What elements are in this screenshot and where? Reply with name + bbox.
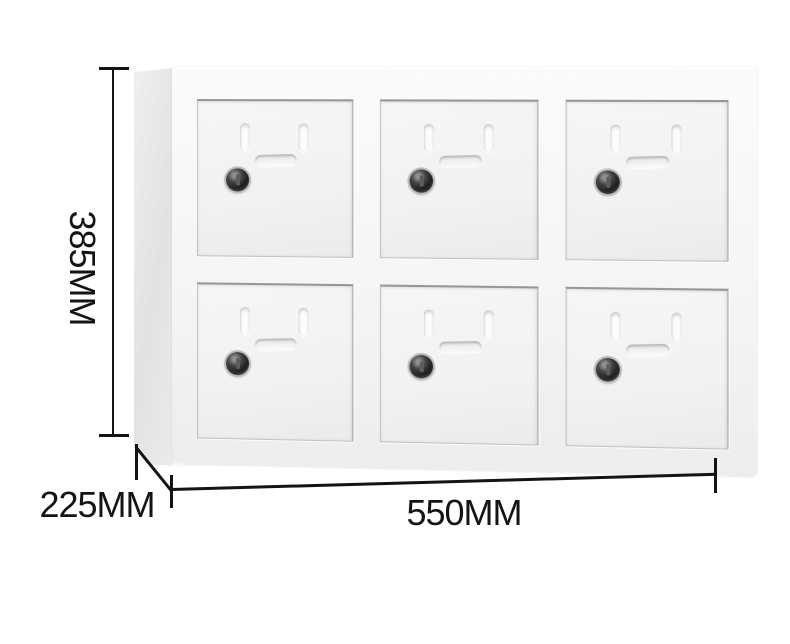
height-dimension-label: 385MM <box>64 210 100 325</box>
vent-slot-icon <box>672 312 683 341</box>
vent-slot-icon <box>299 123 309 151</box>
width-dimension-tick-right <box>714 458 717 493</box>
locker-door-r2c3 <box>566 286 729 449</box>
vent-slot-icon <box>424 309 434 338</box>
keyhole-lock-icon <box>409 169 433 192</box>
vent-slot-icon <box>299 307 309 335</box>
vent-slot-icon <box>611 124 621 153</box>
locker-door-r2c2 <box>380 284 539 446</box>
recessed-handle <box>255 154 297 166</box>
height-dimension-tick-top <box>99 67 129 70</box>
locker-door-r2c1 <box>197 282 353 442</box>
vent-slot-icon <box>611 311 621 340</box>
keyhole-lock-icon <box>226 351 249 374</box>
vent-slot-icon <box>240 123 250 151</box>
keyhole-lock-icon <box>596 170 620 194</box>
height-dimension-line <box>112 69 114 435</box>
width-dimension-tick-left <box>170 475 173 508</box>
recessed-handle <box>626 156 669 169</box>
door-grid <box>172 67 757 477</box>
width-dimension-line <box>171 473 717 491</box>
recessed-handle <box>439 340 482 352</box>
vent-slot-icon <box>240 306 250 334</box>
vent-slot-icon <box>483 124 493 153</box>
product-dimension-figure: 385MM 225MM 550MM <box>0 0 790 644</box>
vent-slot-icon <box>424 124 434 152</box>
recessed-handle <box>255 338 297 350</box>
recessed-handle <box>439 155 482 167</box>
locker-door-r1c1 <box>197 99 353 257</box>
locker-door-r1c2 <box>380 99 539 259</box>
cabinet-front <box>172 67 757 477</box>
keyhole-lock-icon <box>409 354 433 378</box>
locker-door-r1c3 <box>566 100 729 262</box>
height-dimension-tick-bottom <box>99 434 129 437</box>
cabinet-side-panel <box>134 68 173 465</box>
keyhole-lock-icon <box>596 357 620 381</box>
vent-slot-icon <box>672 125 683 154</box>
keyhole-lock-icon <box>226 168 249 191</box>
recessed-handle <box>626 343 669 355</box>
depth-dimension-label: 225MM <box>39 487 154 523</box>
width-dimension-label: 550MM <box>406 495 521 531</box>
vent-slot-icon <box>483 310 493 339</box>
